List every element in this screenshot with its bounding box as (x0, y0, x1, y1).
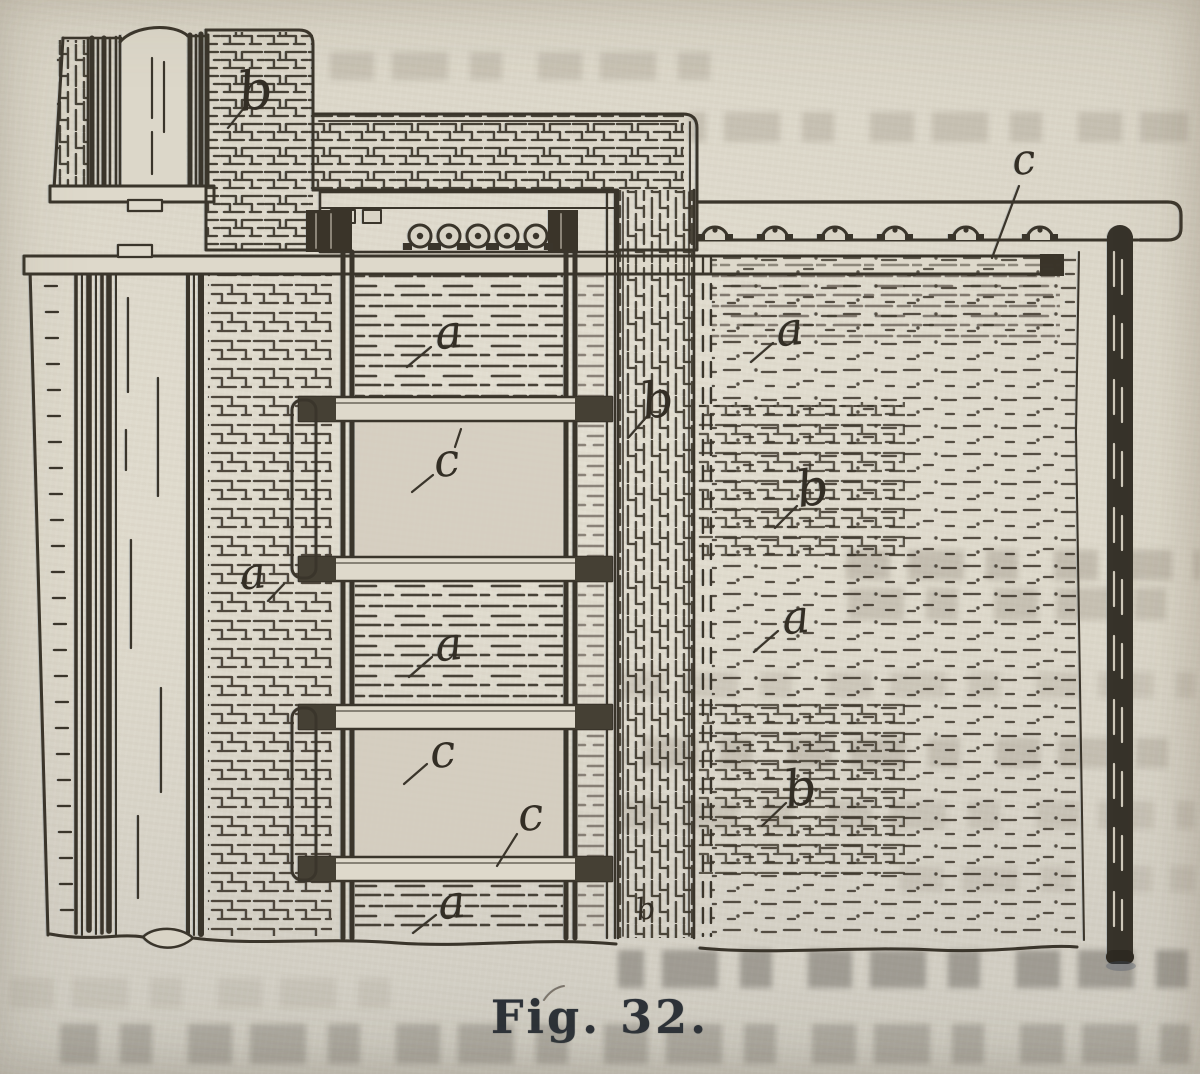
roller (432, 225, 466, 250)
roller (519, 225, 553, 250)
roller (877, 227, 913, 240)
leaf-mark (143, 929, 193, 948)
roller (697, 227, 733, 240)
figure-caption: Fig. 32. (0, 990, 1200, 1044)
label-a-upper-center: a (432, 304, 465, 361)
tie-bar (299, 557, 612, 581)
left-wall-section (30, 268, 201, 935)
label-c-rail: c (1009, 134, 1038, 185)
label-a-right-mid: a (779, 589, 812, 646)
label-a-right-upper: a (773, 301, 806, 358)
brick-pier (617, 190, 694, 938)
label-a-lower-center: a (435, 874, 468, 931)
roller (403, 225, 437, 250)
label-a-mid-center: a (432, 616, 465, 673)
upright-cap-left (306, 210, 352, 252)
label-a-left-wall: a (237, 547, 268, 600)
roller (757, 227, 793, 240)
roller (461, 225, 495, 250)
timber-cylinder (122, 34, 186, 188)
left-hatched-column (208, 272, 332, 936)
right-bottom-wavy-edge (700, 946, 1077, 950)
rollers-left-group (403, 225, 553, 250)
figure-32-engraving: b c a c a a b b a c c a b a b (0, 0, 1200, 1074)
roller (948, 227, 984, 240)
tie-bar (299, 397, 612, 421)
tie-bar (299, 705, 612, 729)
tower-base-shelf (50, 186, 214, 211)
plank-grain-dashes (126, 298, 161, 898)
roller (817, 227, 853, 240)
plaster-tick-marks (45, 286, 73, 910)
roller (490, 225, 524, 250)
right-thin-edge (1076, 252, 1084, 940)
top-left-tower (54, 28, 208, 190)
hanging-rod (1106, 225, 1136, 971)
scanned-book-page: b c a c a a b b a c c a b a b Fig. 32. (0, 0, 1200, 1074)
roller (1022, 227, 1058, 240)
